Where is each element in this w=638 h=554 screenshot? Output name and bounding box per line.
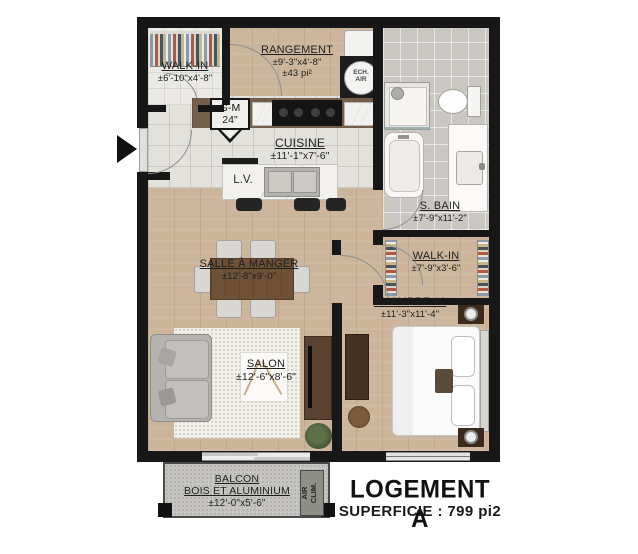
island-stool <box>326 198 346 211</box>
room-dims: ±12'-6"x8'-6" <box>206 371 326 383</box>
room-dims: ±11'-1"x7'-6" <box>240 150 360 162</box>
room-name: WALK-IN <box>396 250 476 263</box>
room-dims: ±9'-3"x4'-8" <box>238 57 356 68</box>
room-area: ±43 pi² <box>238 68 356 79</box>
window-glass-line <box>386 456 470 457</box>
chambre-window <box>386 452 470 461</box>
burner <box>311 108 320 117</box>
bed-runner <box>435 369 453 393</box>
door-panel <box>202 453 258 456</box>
gm-size: 24" <box>212 115 248 126</box>
lamp <box>464 430 478 444</box>
room-label-salon: SALON ±12'-6"x8'-6" <box>206 358 326 383</box>
wall-walkin1-bottom-a <box>148 105 166 112</box>
wall-chambre-salon <box>332 303 342 451</box>
room-name: SALLE À MANGER <box>184 258 314 271</box>
shower-glass <box>385 127 429 129</box>
plant <box>305 423 332 449</box>
entry-arrow-icon <box>117 135 137 163</box>
balcony-sliding-door <box>202 452 310 461</box>
burner <box>279 108 288 117</box>
unit-superficie: SUPERFICIE : 799 pi2 <box>326 503 514 520</box>
island-sink <box>264 167 320 197</box>
bed-headboard <box>480 330 489 432</box>
walkin2-clothes-rack <box>477 240 489 296</box>
wall-left-lower <box>137 172 148 462</box>
label-lave-vaisselle: L.V. <box>224 170 262 189</box>
room-label-balcon: BALCON BOIS ET ALUMINIUM ±12'-0"x5'-6" <box>170 473 304 510</box>
sofa <box>150 334 212 422</box>
room-dims: ±6'-10"x4'-8" <box>146 73 224 84</box>
duvet-fold <box>393 327 413 435</box>
room-label-walkin2: WALK-IN ±7'-9"x3'-6" <box>396 250 476 274</box>
island-stool <box>294 198 320 211</box>
vanity-faucet <box>479 163 485 170</box>
air-clim-line2: CLIM. <box>309 470 318 516</box>
room-dims: ±7'-9"x11'-2" <box>392 213 488 224</box>
bathtub <box>384 132 424 198</box>
sink-basin <box>268 171 292 193</box>
lv-label: L.V. <box>233 174 252 186</box>
vanity <box>448 124 488 212</box>
island-stool <box>236 198 262 211</box>
bathtub-faucet <box>398 135 409 139</box>
room-name: CUISINE <box>240 136 360 150</box>
dining-chair <box>216 299 242 318</box>
pillow <box>451 336 475 377</box>
room-dims: ±12'-8"x9'-0" <box>184 271 314 282</box>
shower-head <box>391 87 404 100</box>
garde-manger-box: G-M 24" <box>210 98 250 130</box>
room-label-walkin1: WALK-IN ±6'-10"x4'-8" <box>146 60 224 84</box>
room-dims: ±11'-3"x11'-4" <box>350 309 470 320</box>
toilet-bowl <box>438 89 468 114</box>
floor-plan-page: { "title_block": { "title": "LOGEMENT A"… <box>0 0 638 554</box>
wall-bath-walkin2 <box>373 230 489 237</box>
room-name: SALON <box>206 358 326 371</box>
wall-chambre-stub <box>332 240 341 255</box>
dining-chair <box>216 240 242 259</box>
room-name: S. BAIN <box>392 200 488 213</box>
room-material: BOIS ET ALUMINIUM <box>170 485 304 497</box>
bedroom-chair <box>348 406 370 428</box>
room-label-cuisine: CUISINE ±11'-1"x7'-6" <box>240 136 360 163</box>
wall-walkin1-bottom-b <box>198 105 224 112</box>
dining-chair <box>250 299 276 318</box>
bed <box>392 326 480 436</box>
room-dims: ±7'-9"x3'-6" <box>396 263 476 274</box>
wall-walkin2-left-a <box>373 237 383 245</box>
room-name: CHAMBRE #1 <box>350 296 470 309</box>
door-panel <box>254 457 310 460</box>
room-label-sbain: S. BAIN ±7'-9"x11'-2" <box>392 200 488 224</box>
bathtub-basin <box>389 140 420 192</box>
wall-right <box>489 17 500 462</box>
burner <box>294 108 303 117</box>
dresser <box>345 334 369 400</box>
burner <box>326 108 335 117</box>
pillow <box>451 385 475 426</box>
shower <box>384 82 430 130</box>
sink-basin <box>293 171 317 193</box>
room-name: RANGEMENT <box>238 44 356 57</box>
entry-door <box>139 128 148 172</box>
room-label-salle-a-manger: SALLE À MANGER ±12'-8"x9'-0" <box>184 258 314 282</box>
counter-left <box>252 102 274 126</box>
room-label-rangement: RANGEMENT ±9'-3"x4'-8" ±43 pi² <box>238 44 356 79</box>
wall-top <box>137 17 500 28</box>
room-label-chambre: CHAMBRE #1 ±11'-3"x11'-4" <box>350 296 470 320</box>
stove-cooktop <box>272 100 342 126</box>
room-name: WALK-IN <box>146 60 224 73</box>
toilet <box>438 86 482 116</box>
toilet-tank <box>467 86 481 117</box>
wall-bath-left <box>373 28 383 190</box>
room-dims: ±12'-0"x5'-6" <box>170 498 304 510</box>
dining-chair <box>250 240 276 259</box>
room-name: BALCON <box>170 473 304 485</box>
